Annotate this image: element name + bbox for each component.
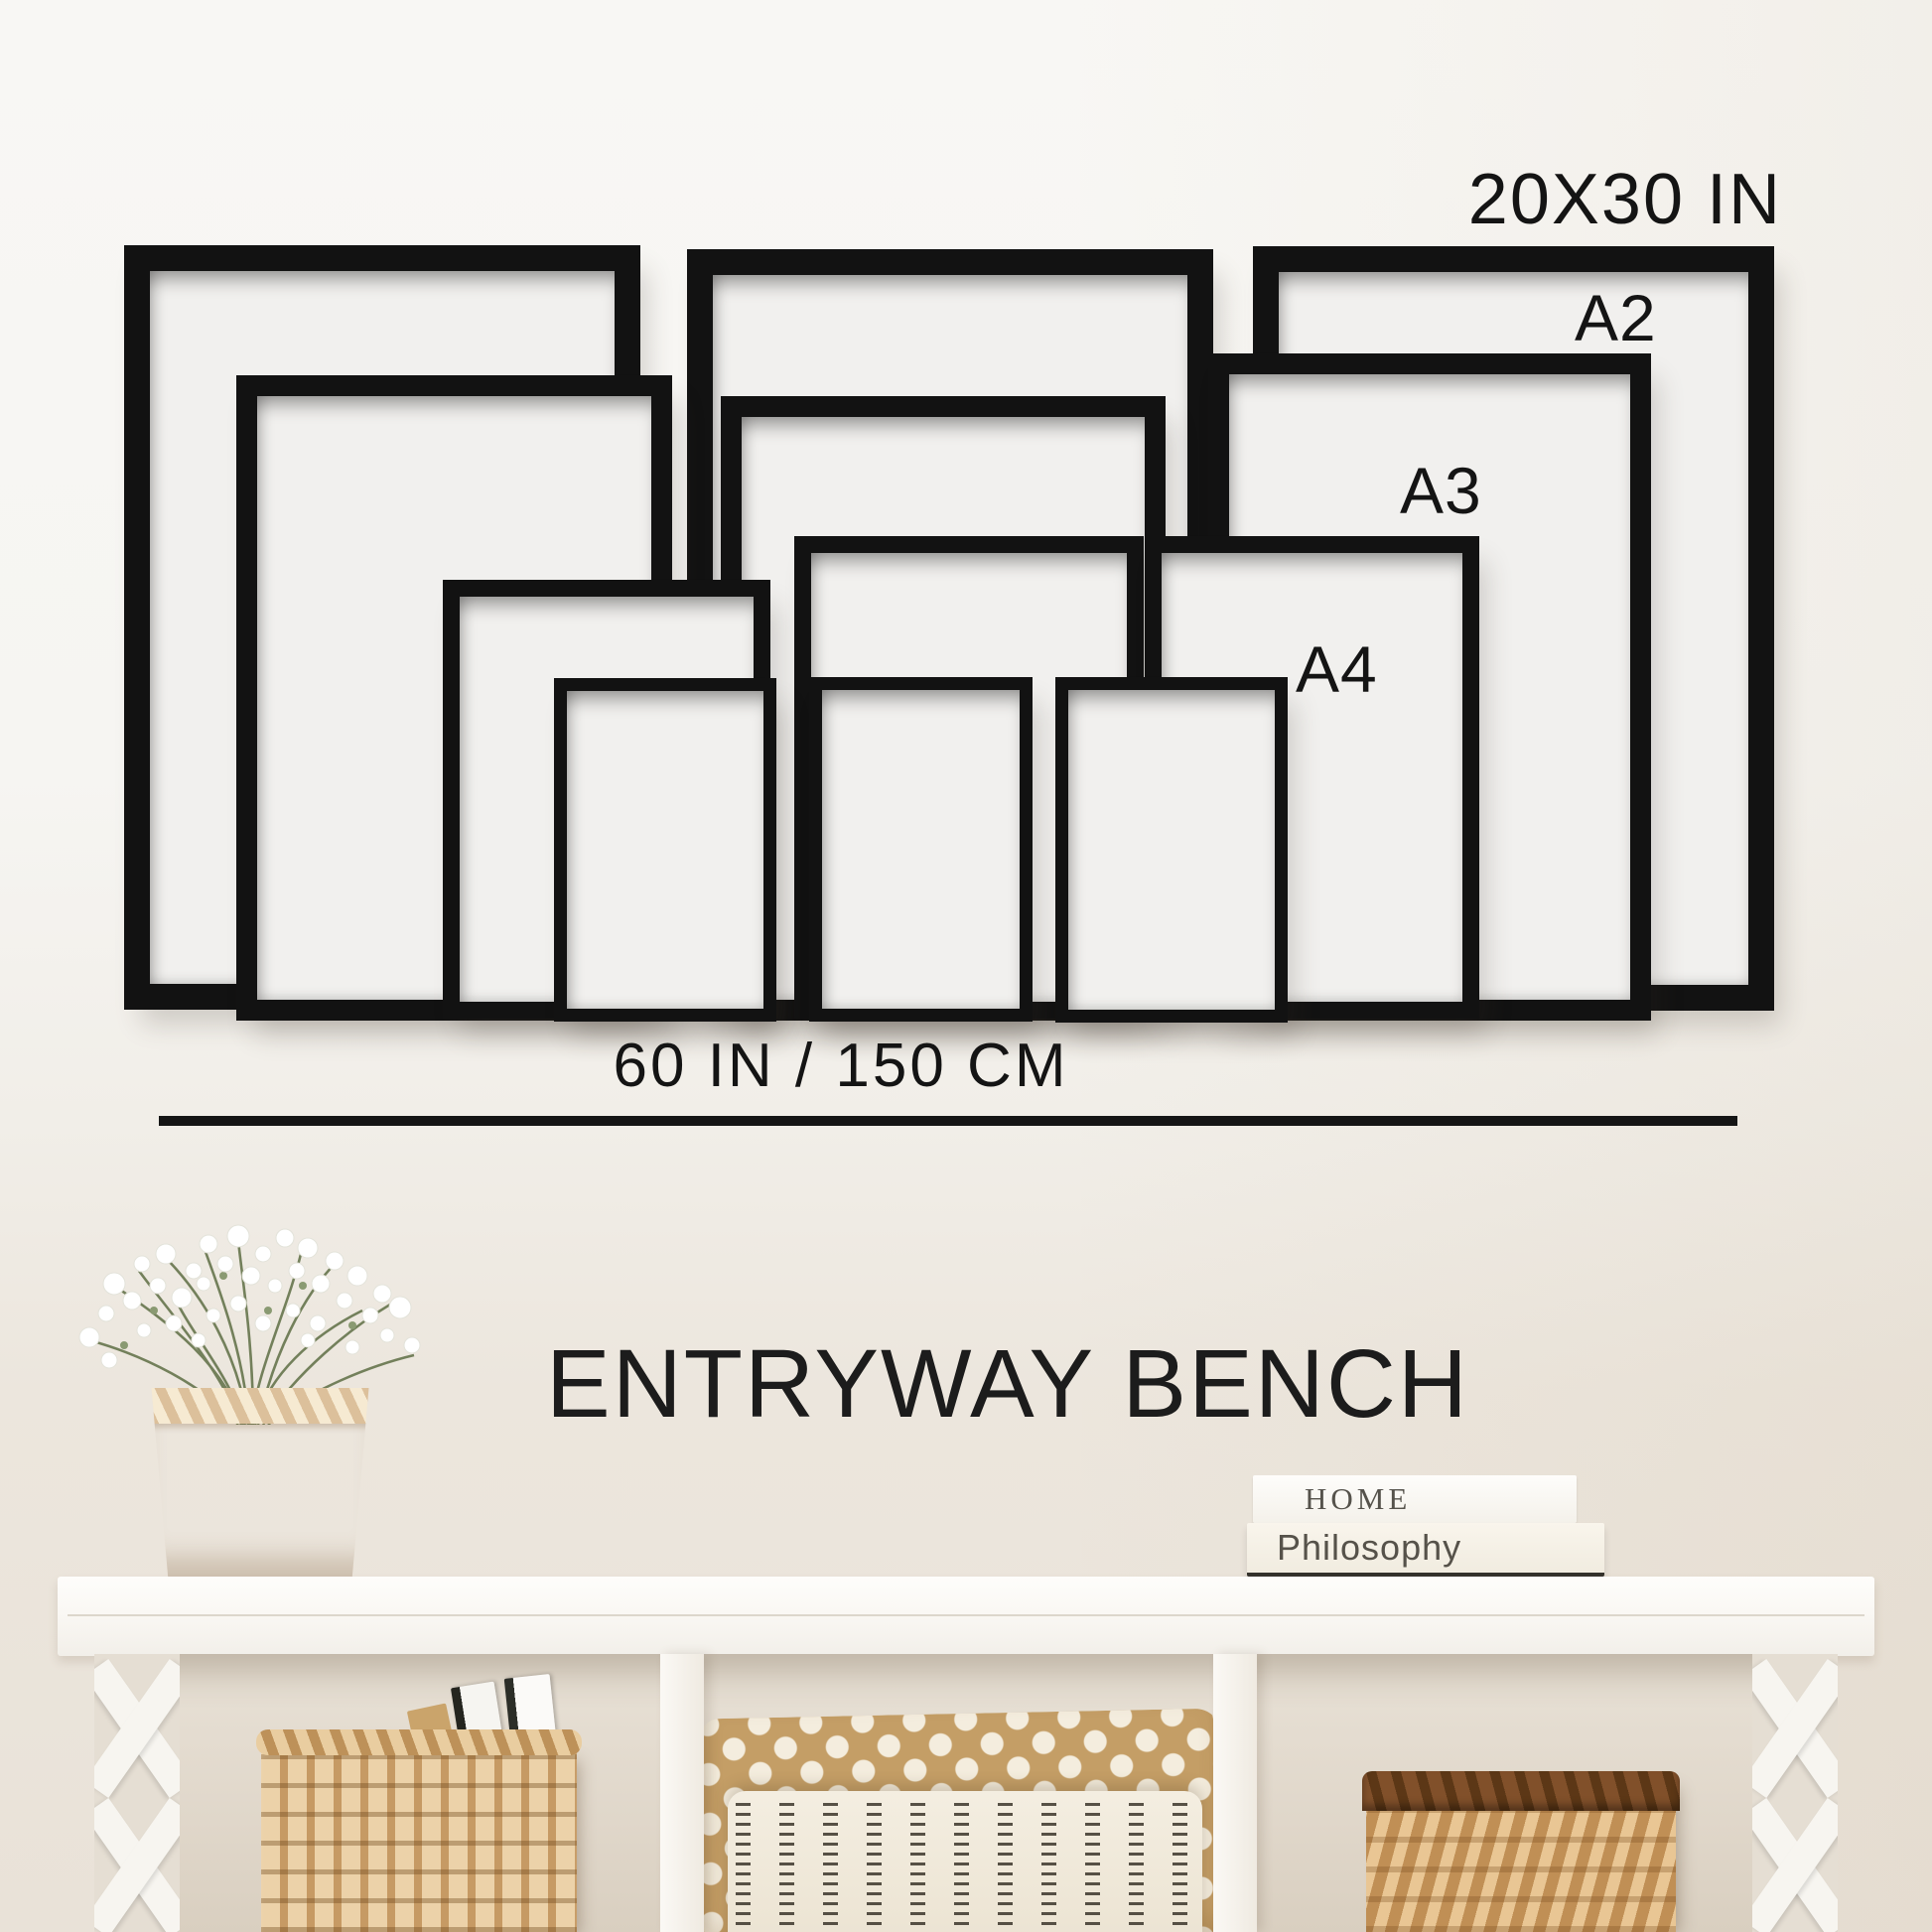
size-label-a2: A2 xyxy=(1575,280,1657,355)
book-home-title: HOME xyxy=(1305,1481,1411,1517)
right-storage-basket xyxy=(1366,1771,1676,1932)
book-home: HOME xyxy=(1253,1475,1577,1523)
product-mockup: 20X30 IN A2 A3 A4 60 IN / 150 CM ENTRYWA… xyxy=(0,0,1932,1932)
left-storage-basket xyxy=(261,1741,577,1932)
frame-a4-middle xyxy=(809,677,1033,1022)
size-label-a4: A4 xyxy=(1296,631,1378,707)
flower-basket xyxy=(142,1388,378,1577)
size-label-a3: A3 xyxy=(1400,453,1482,528)
frame-a4-left xyxy=(554,678,776,1022)
bench-width-label: 60 IN / 150 CM xyxy=(593,1031,1089,1101)
size-label-20x30: 20X30 IN xyxy=(1445,159,1782,240)
dimension-line xyxy=(159,1116,1737,1126)
bench-top xyxy=(58,1577,1874,1656)
book-philosophy: Philosophy xyxy=(1247,1523,1604,1577)
bench-divider-left xyxy=(660,1654,704,1932)
frame-a4-right xyxy=(1055,677,1288,1023)
stripe-pattern xyxy=(736,1801,1194,1932)
bench-body xyxy=(94,1654,1838,1932)
bench-left-panel xyxy=(94,1654,180,1932)
striped-pillow xyxy=(728,1791,1202,1932)
book-philosophy-title: Philosophy xyxy=(1277,1527,1461,1569)
bench-divider-right xyxy=(1213,1654,1257,1932)
bench-right-panel xyxy=(1752,1654,1838,1932)
